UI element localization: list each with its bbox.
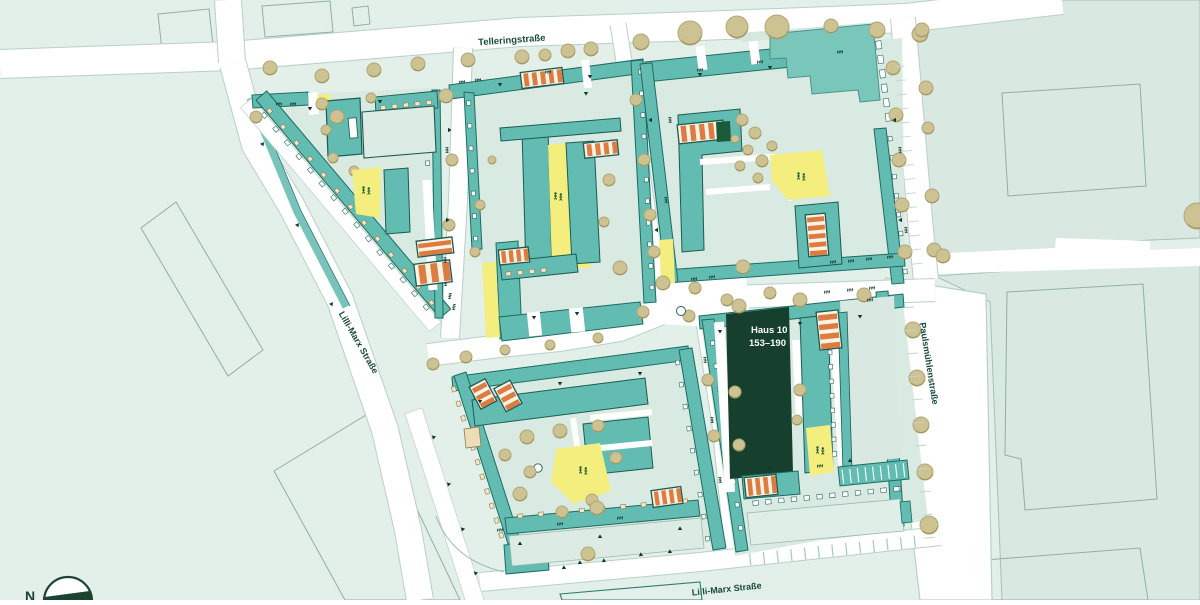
svg-text:N: N (25, 588, 35, 600)
svg-text:153–190: 153–190 (749, 338, 786, 349)
svg-text:Haus 10: Haus 10 (751, 325, 787, 336)
